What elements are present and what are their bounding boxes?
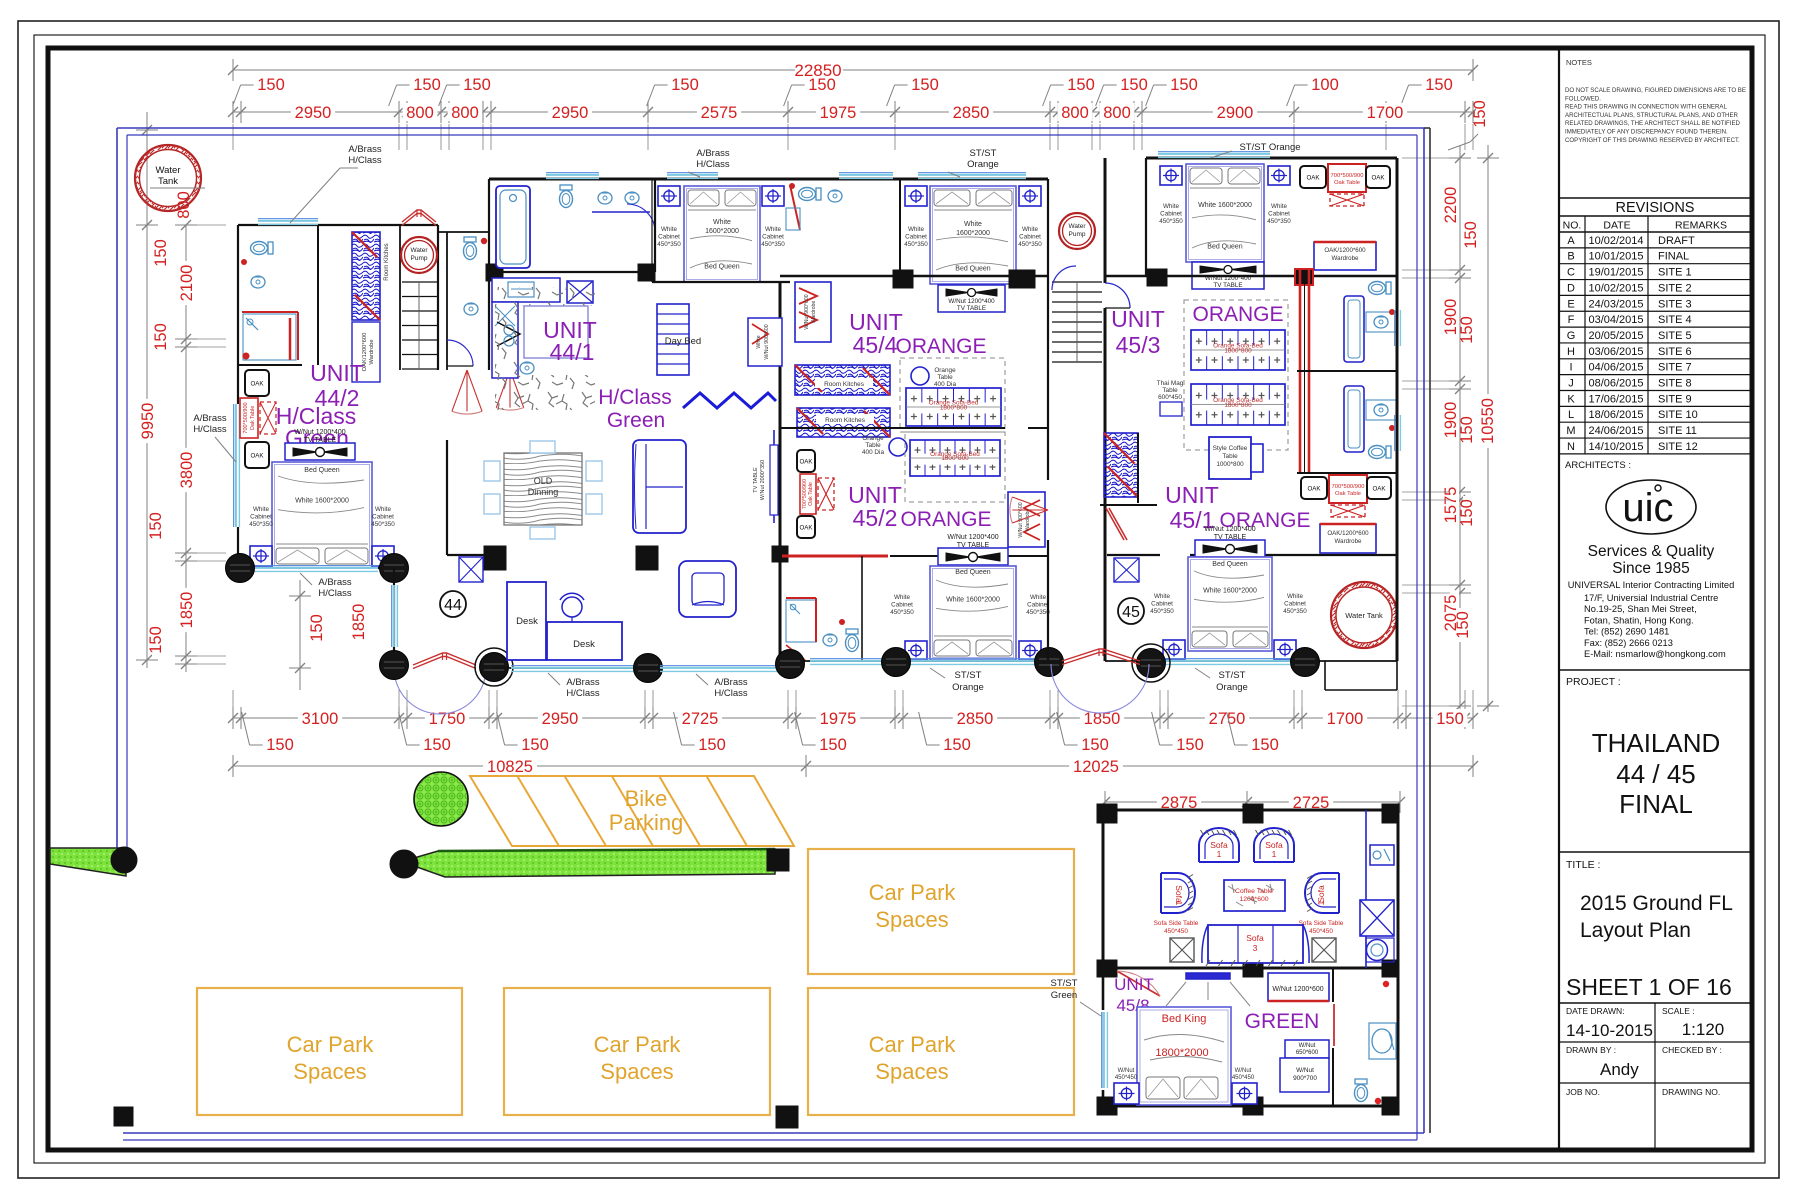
svg-text:PROJECT :: PROJECT :: [1566, 676, 1621, 688]
svg-text:Sofa: Sofa: [1316, 885, 1326, 903]
svg-text:A/Brass: A/Brass: [714, 677, 748, 688]
svg-text:150: 150: [1251, 736, 1279, 754]
svg-text:14/10/2015: 14/10/2015: [1588, 441, 1643, 453]
svg-text:Cabinet: Cabinet: [762, 234, 784, 241]
svg-text:SITE 7: SITE 7: [1658, 362, 1692, 374]
svg-text:Oak Table: Oak Table: [1335, 491, 1361, 497]
svg-text:SITE 11: SITE 11: [1658, 425, 1697, 437]
svg-text:Layout Plan: Layout Plan: [1580, 919, 1691, 942]
svg-text:White: White: [1154, 593, 1171, 600]
svg-text:TV TABLE: TV TABLE: [957, 305, 986, 312]
svg-text:A/Brass: A/Brass: [193, 413, 227, 424]
svg-text:Services & Quality: Services & Quality: [1588, 543, 1715, 560]
svg-text:150: 150: [1471, 100, 1489, 128]
svg-text:Orange: Orange: [952, 682, 984, 693]
svg-text:2725: 2725: [682, 710, 719, 728]
svg-text:650*600: 650*600: [1296, 1050, 1319, 1056]
svg-text:150: 150: [1458, 316, 1476, 344]
svg-text:Coffee Table: Coffee Table: [1235, 888, 1273, 895]
svg-text:03/06/2015: 03/06/2015: [1588, 346, 1643, 358]
svg-text:OAK: OAK: [1371, 175, 1385, 182]
svg-text:450*450: 450*450: [1164, 928, 1188, 935]
svg-text:DRAWN BY :: DRAWN BY :: [1566, 1045, 1616, 1055]
svg-text:I: I: [1569, 362, 1572, 374]
svg-text:B: B: [1567, 251, 1574, 263]
svg-text:9950: 9950: [139, 403, 157, 440]
svg-text:700*500/900: 700*500/900: [1332, 484, 1365, 490]
svg-text:COPYRIGHT OF THIS DRAWING RESE: COPYRIGHT OF THIS DRAWING RESERVED BY AR…: [1565, 137, 1740, 144]
svg-text:H/Class: H/Class: [598, 386, 672, 409]
svg-text:REVISIONS: REVISIONS: [1616, 200, 1695, 216]
svg-text:1600*2000: 1600*2000: [705, 228, 739, 235]
svg-text:Bike: Bike: [625, 786, 668, 811]
svg-text:White 1600*2000: White 1600*2000: [946, 597, 1000, 604]
svg-text:450*350: 450*350: [1026, 609, 1050, 616]
svg-text:W/Nut 1200*400: W/Nut 1200*400: [1204, 526, 1255, 533]
svg-text:Since 1985: Since 1985: [1612, 560, 1690, 577]
svg-text:OAK: OAK: [1372, 486, 1386, 493]
svg-text:FOLLOWED.: FOLLOWED.: [1565, 95, 1601, 102]
svg-text:Wardrobe: Wardrobe: [369, 339, 375, 364]
svg-text:L: L: [1568, 409, 1574, 421]
svg-text:Parking: Parking: [609, 810, 684, 835]
svg-text:150: 150: [1425, 76, 1453, 94]
svg-text:H/Class: H/Class: [348, 155, 382, 166]
svg-text:Desk: Desk: [573, 639, 595, 650]
svg-text:C: C: [1567, 267, 1575, 279]
svg-text:W/Nut 1200*400: W/Nut 1200*400: [948, 298, 995, 305]
svg-text:150: 150: [1176, 736, 1204, 754]
svg-text:Water Tank: Water Tank: [1345, 611, 1383, 620]
svg-text:10825: 10825: [487, 758, 533, 776]
svg-text:Table: Table: [1162, 387, 1178, 394]
svg-text:44 / 45: 44 / 45: [1616, 759, 1696, 789]
svg-text:Cabinet: Cabinet: [372, 514, 394, 521]
svg-text:1: 1: [1174, 901, 1184, 906]
svg-text:Bed Queen: Bed Queen: [1212, 561, 1248, 568]
svg-text:3: 3: [1253, 943, 1258, 953]
svg-text:W/Nut 900*600: W/Nut 900*600: [764, 324, 770, 359]
svg-text:OAK/1200*600: OAK/1200*600: [1327, 530, 1369, 537]
svg-text:450*450: 450*450: [1115, 1075, 1138, 1081]
svg-text:800: 800: [1061, 104, 1089, 122]
svg-text:READ THIS DRAWING IN CONNECTIO: READ THIS DRAWING IN CONNECTION WITH GEN…: [1565, 104, 1727, 111]
svg-text:Bed Queen: Bed Queen: [304, 467, 340, 474]
svg-text:150: 150: [1462, 221, 1480, 249]
svg-text:TV TABLE: TV TABLE: [957, 542, 990, 549]
svg-text:1: 1: [1272, 849, 1277, 859]
svg-text:Spaces: Spaces: [600, 1059, 673, 1084]
svg-text:DRAFT: DRAFT: [1658, 235, 1695, 247]
svg-text:Water: Water: [156, 165, 181, 176]
svg-text:1700: 1700: [1367, 104, 1404, 122]
svg-text:150: 150: [521, 736, 549, 754]
svg-text:F: F: [1568, 314, 1575, 326]
svg-text:Andy: Andy: [1600, 1060, 1639, 1079]
svg-text:150: 150: [152, 239, 170, 267]
svg-text:150: 150: [257, 76, 285, 94]
svg-text:Wardrobe: Wardrobe: [811, 301, 817, 324]
svg-text:DO NOT SCALE DRAWING, FIGURED: DO NOT SCALE DRAWING, FIGURED DIMENSIONS…: [1565, 87, 1746, 94]
svg-text:ORANGE: ORANGE: [900, 508, 991, 531]
svg-text:450*350: 450*350: [761, 241, 785, 248]
svg-text:1975: 1975: [820, 710, 857, 728]
svg-text:W/Nut: W/Nut: [1118, 1068, 1135, 1074]
svg-text:SITE 12: SITE 12: [1658, 441, 1698, 453]
svg-text:600*450: 600*450: [1158, 394, 1182, 401]
svg-text:H/Class: H/Class: [566, 688, 600, 699]
svg-text:OAK: OAK: [250, 381, 264, 388]
svg-text:150: 150: [266, 736, 294, 754]
svg-text:Table: Table: [937, 374, 953, 381]
svg-text:Room Kitches: Room Kitches: [825, 417, 865, 424]
svg-text:Cabinet: Cabinet: [1160, 211, 1182, 218]
svg-text:2200: 2200: [1442, 187, 1460, 224]
svg-text:FINAL: FINAL: [1658, 251, 1689, 263]
svg-text:150: 150: [1458, 416, 1476, 444]
svg-text:20/05/2015: 20/05/2015: [1588, 330, 1643, 342]
svg-text:Day Bed: Day Bed: [665, 336, 701, 347]
svg-text:Sofa Side Table: Sofa Side Table: [1299, 920, 1344, 927]
svg-text:14-10-2015: 14-10-2015: [1566, 1021, 1653, 1040]
svg-text:10/02/2015: 10/02/2015: [1588, 282, 1643, 294]
svg-text:2100: 2100: [178, 265, 196, 302]
svg-text:900*700: 900*700: [1293, 1075, 1317, 1082]
svg-text:Green: Green: [1051, 990, 1077, 1001]
svg-text:A/Brass: A/Brass: [696, 148, 730, 159]
svg-text:150: 150: [413, 76, 441, 94]
svg-text:2950: 2950: [295, 104, 332, 122]
svg-text:24/06/2015: 24/06/2015: [1588, 425, 1643, 437]
svg-text:Orange: Orange: [1216, 682, 1248, 693]
svg-text:White: White: [1163, 203, 1180, 210]
svg-text:2850: 2850: [957, 710, 994, 728]
svg-text:17/06/2015: 17/06/2015: [1588, 393, 1643, 405]
svg-text:Pump: Pump: [1069, 231, 1086, 238]
svg-text:Water: Water: [410, 247, 428, 254]
svg-text:W/Nut 2000*350: W/Nut 2000*350: [760, 460, 766, 500]
svg-text:100: 100: [1311, 76, 1339, 94]
svg-text:2950: 2950: [542, 710, 579, 728]
svg-text:Wardrobe: Wardrobe: [1335, 538, 1362, 545]
svg-text:White: White: [253, 506, 270, 513]
svg-text:Desk: Desk: [516, 616, 538, 627]
svg-text:E-Mail: nsmarlow@hongkong.com: E-Mail: nsmarlow@hongkong.com: [1584, 649, 1726, 659]
svg-text:450*350: 450*350: [1283, 608, 1307, 615]
svg-text:Thai Mag: Thai Mag: [1157, 380, 1184, 387]
svg-text:DATE DRAWN:: DATE DRAWN:: [1566, 1006, 1625, 1016]
svg-text:White 1600*2000: White 1600*2000: [1203, 588, 1257, 595]
svg-text:450*450: 450*450: [1232, 1075, 1255, 1081]
svg-text:450*350: 450*350: [890, 609, 914, 616]
svg-text:2015 Ground FL: 2015 Ground FL: [1580, 892, 1733, 915]
svg-text:Bed King: Bed King: [1162, 1013, 1207, 1025]
svg-text:2950: 2950: [552, 104, 589, 122]
svg-text:SITE 4: SITE 4: [1658, 314, 1692, 326]
svg-text:ST/ST: ST/ST: [970, 148, 997, 159]
svg-text:ST/ST: ST/ST: [1051, 978, 1078, 989]
svg-text:W/Nut 1200*400: W/Nut 1200*400: [294, 429, 345, 436]
svg-text:White: White: [713, 219, 731, 226]
svg-text:150: 150: [943, 736, 971, 754]
svg-text:White: White: [1022, 226, 1039, 233]
svg-text:Style Coffee: Style Coffee: [1213, 445, 1248, 452]
svg-text:H/Class: H/Class: [696, 159, 730, 170]
svg-text:SITE 10: SITE 10: [1658, 409, 1698, 421]
svg-text:Spaces: Spaces: [875, 1059, 948, 1084]
svg-text:NOTES: NOTES: [1566, 58, 1592, 67]
svg-text:24/03/2015: 24/03/2015: [1588, 298, 1643, 310]
svg-text:JOB NO.: JOB NO.: [1566, 1087, 1600, 1097]
svg-text:Sofa: Sofa: [1246, 933, 1264, 943]
svg-text:Tel: (852) 2690 1481: Tel: (852) 2690 1481: [1584, 627, 1669, 637]
svg-text:700*500/900: 700*500/900: [1331, 173, 1364, 179]
svg-text:Dinning: Dinning: [528, 487, 559, 497]
svg-text:Table: Table: [865, 442, 881, 449]
svg-text:04/06/2015: 04/06/2015: [1588, 362, 1643, 374]
svg-text:W/Nut: W/Nut: [1235, 1068, 1252, 1074]
svg-text:10/02/2014: 10/02/2014: [1588, 235, 1643, 247]
svg-text:150: 150: [147, 512, 165, 540]
svg-text:H/Class: H/Class: [714, 688, 748, 699]
svg-text:Orange: Orange: [934, 367, 956, 374]
svg-text:17/F, Universial Industrial Ce: 17/F, Universial Industrial Centre: [1584, 593, 1718, 603]
svg-text:UNIT: UNIT: [310, 360, 364, 386]
svg-text:White: White: [375, 506, 392, 513]
svg-text:UNIVERSAL Interior Contracting: UNIVERSAL Interior Contracting Limited: [1568, 580, 1735, 590]
svg-text:J: J: [1568, 378, 1574, 390]
svg-text:Bed Queen: Bed Queen: [955, 265, 991, 272]
svg-text:Bed Queen: Bed Queen: [1207, 243, 1243, 250]
svg-text:44: 44: [444, 597, 462, 614]
svg-text:1: 1: [1316, 900, 1326, 905]
svg-text:150: 150: [152, 323, 170, 351]
svg-text:45: 45: [1122, 604, 1140, 621]
svg-text:150: 150: [671, 76, 699, 94]
svg-text:Tank: Tank: [158, 176, 178, 187]
svg-text:1975: 1975: [820, 104, 857, 122]
svg-text:CHECKED BY :: CHECKED BY :: [1662, 1045, 1722, 1055]
svg-text:Cabinet: Cabinet: [905, 234, 927, 241]
svg-text:White: White: [1271, 203, 1288, 210]
svg-text:K: K: [1567, 393, 1575, 405]
svg-text:10550: 10550: [1479, 398, 1497, 444]
svg-text:uic: uic: [1622, 486, 1673, 530]
svg-text:1800*800: 1800*800: [941, 455, 969, 462]
svg-text:1850: 1850: [178, 592, 196, 629]
svg-text:M: M: [1566, 425, 1575, 437]
svg-text:1600*2000: 1600*2000: [956, 230, 990, 237]
svg-text:18/06/2015: 18/06/2015: [1588, 409, 1643, 421]
svg-text:150: 150: [698, 736, 726, 754]
svg-text:GREEN: GREEN: [1245, 1010, 1320, 1033]
svg-text:UNIT: UNIT: [1114, 975, 1154, 994]
svg-text:W/Nut: W/Nut: [1299, 1043, 1316, 1049]
svg-text:SCALE :: SCALE :: [1662, 1006, 1695, 1016]
svg-text:W/Nut 900*600: W/Nut 900*600: [804, 294, 810, 329]
svg-text:400 Dia: 400 Dia: [862, 449, 884, 456]
svg-text:150: 150: [911, 76, 939, 94]
svg-text:450*350: 450*350: [249, 521, 273, 528]
svg-text:150: 150: [1081, 736, 1109, 754]
svg-text:150: 150: [808, 76, 836, 94]
svg-text:TITLE :: TITLE :: [1566, 859, 1600, 871]
svg-text:450*450: 450*450: [1309, 928, 1333, 935]
svg-text:12025: 12025: [1073, 758, 1119, 776]
svg-text:DRAWING NO.: DRAWING NO.: [1662, 1087, 1720, 1097]
svg-text:ST/ST: ST/ST: [955, 670, 982, 681]
svg-text:Spaces: Spaces: [875, 907, 948, 932]
svg-text:SITE 9: SITE 9: [1658, 393, 1692, 405]
svg-text:Car Park: Car Park: [869, 1032, 957, 1057]
svg-text:Oak Table: Oak Table: [808, 482, 814, 506]
svg-text:Pump: Pump: [411, 255, 428, 262]
svg-text:H/Class: H/Class: [193, 424, 227, 435]
svg-text:150: 150: [423, 736, 451, 754]
svg-text:D: D: [1567, 282, 1575, 294]
svg-text:OAK: OAK: [799, 525, 813, 532]
svg-text:W/Nut: W/Nut: [1296, 1067, 1314, 1074]
svg-text:TV TABLE: TV TABLE: [1213, 282, 1242, 289]
svg-text:White: White: [1030, 594, 1047, 601]
svg-text:1800*800: 1800*800: [1224, 347, 1252, 354]
svg-text:White 1600*2000: White 1600*2000: [1198, 202, 1252, 209]
svg-text:3800: 3800: [178, 452, 196, 489]
svg-text:Cabinet: Cabinet: [1019, 234, 1041, 241]
svg-text:TV TABLE: TV TABLE: [1214, 534, 1247, 541]
svg-text:3100: 3100: [302, 710, 339, 728]
svg-text:White: White: [765, 226, 782, 233]
svg-text:OLD: OLD: [534, 476, 553, 486]
svg-text:450*350: 450*350: [904, 241, 928, 248]
svg-text:A/Brass: A/Brass: [566, 677, 600, 688]
svg-text:Fotan, Shatin, Hong Kong.: Fotan, Shatin, Hong Kong.: [1584, 615, 1694, 625]
svg-text:150: 150: [819, 736, 847, 754]
svg-text:1800*800: 1800*800: [940, 404, 968, 411]
svg-text:1: 1: [1217, 849, 1222, 859]
svg-text:2900: 2900: [1217, 104, 1254, 122]
svg-text:REMARKS: REMARKS: [1675, 220, 1727, 232]
svg-text:White: White: [1287, 593, 1304, 600]
svg-text:150: 150: [1454, 611, 1472, 639]
svg-text:Spaces: Spaces: [293, 1059, 366, 1084]
svg-text:Cabinet: Cabinet: [1284, 601, 1306, 608]
svg-text:TV TABLE: TV TABLE: [304, 437, 337, 444]
svg-text:Cabinet: Cabinet: [1151, 601, 1173, 608]
svg-text:FINAL: FINAL: [1619, 789, 1693, 819]
svg-text:Room Kitches: Room Kitches: [824, 381, 864, 388]
svg-text:Bed Queen: Bed Queen: [704, 264, 740, 271]
svg-text:1200*600: 1200*600: [1239, 896, 1268, 903]
svg-text:03/04/2015: 03/04/2015: [1588, 314, 1643, 326]
svg-text:1850: 1850: [350, 604, 368, 641]
svg-text:450*350: 450*350: [657, 241, 681, 248]
svg-text:White: White: [964, 221, 982, 228]
svg-text:ST/ST Orange: ST/ST Orange: [1239, 142, 1300, 153]
svg-text:ST/ST: ST/ST: [1219, 670, 1246, 681]
svg-text:1800*2000: 1800*2000: [1155, 1047, 1208, 1059]
svg-text:450*350: 450*350: [1159, 218, 1183, 225]
svg-text:450*350: 450*350: [1267, 218, 1291, 225]
svg-text:10/01/2015: 10/01/2015: [1588, 251, 1643, 263]
svg-text:150: 150: [1120, 76, 1148, 94]
svg-text:White: White: [894, 594, 911, 601]
svg-text:E: E: [1567, 298, 1574, 310]
svg-text:A/Brass: A/Brass: [348, 144, 382, 155]
svg-text:RELATED DRAWINGS, THE ARCHITEC: RELATED DRAWINGS, THE ARCHITECT SHALL BE…: [1565, 120, 1741, 127]
svg-text:OAK: OAK: [799, 459, 813, 466]
svg-text:OAK/1200*600: OAK/1200*600: [1324, 247, 1366, 254]
svg-text:45/3: 45/3: [1116, 332, 1161, 358]
svg-text:White: White: [908, 226, 925, 233]
svg-text:Orange: Orange: [862, 435, 884, 442]
svg-text:OAK: OAK: [250, 453, 264, 460]
svg-text:Water: Water: [1068, 223, 1086, 230]
svg-text:150: 150: [1436, 710, 1464, 728]
svg-text:2850: 2850: [953, 104, 990, 122]
svg-text:400 Dia: 400 Dia: [934, 381, 956, 388]
svg-text:ORANGE: ORANGE: [895, 335, 986, 358]
svg-text:IMMEDIATELY OF ANY DISCREPANCY: IMMEDIATELY OF ANY DISCREPANCY FOUND THE…: [1565, 129, 1728, 136]
svg-text:UNIT: UNIT: [1111, 306, 1165, 332]
svg-text:Orange: Orange: [967, 159, 999, 170]
svg-text:Table: Table: [1222, 453, 1238, 460]
svg-text:H: H: [1567, 346, 1575, 358]
svg-text:Cabinet: Cabinet: [658, 234, 680, 241]
svg-text:A/Brass: A/Brass: [318, 577, 352, 588]
svg-text:White 1600*2000: White 1600*2000: [295, 497, 349, 504]
svg-text:ARCHITECTUAL PLANS, STRUCTURAL: ARCHITECTUAL PLANS, STRUCTURAL PLANS, AN…: [1565, 112, 1739, 119]
svg-text:45/4: 45/4: [853, 332, 898, 358]
svg-text:OAK: OAK: [1306, 175, 1320, 182]
svg-text:NO.: NO.: [1563, 220, 1582, 232]
svg-text:150: 150: [147, 626, 165, 654]
svg-text:Sofa Side Table: Sofa Side Table: [1154, 920, 1199, 927]
svg-text:ARCHITECTS :: ARCHITECTS :: [1565, 460, 1631, 471]
svg-text:H/Class: H/Class: [318, 588, 352, 599]
svg-text:44/1: 44/1: [550, 339, 595, 365]
svg-text:Cabinet: Cabinet: [1268, 211, 1290, 218]
svg-text:UNIT: UNIT: [1165, 482, 1219, 508]
svg-text:150: 150: [463, 76, 491, 94]
svg-text:150: 150: [1458, 499, 1476, 527]
svg-text:800: 800: [406, 104, 434, 122]
svg-text:Wardrobe: Wardrobe: [1332, 255, 1359, 262]
svg-text:Oak Table: Oak Table: [1334, 180, 1360, 186]
svg-text:450*350: 450*350: [1018, 241, 1042, 248]
svg-text:Cabinet: Cabinet: [1027, 602, 1049, 609]
svg-text:Cabinet: Cabinet: [250, 514, 272, 521]
svg-text:Car Park: Car Park: [287, 1032, 375, 1057]
svg-text:Bed Queen: Bed Queen: [955, 569, 991, 576]
svg-text:150: 150: [1067, 76, 1095, 94]
svg-text:SITE 2: SITE 2: [1658, 282, 1692, 294]
svg-text:150: 150: [308, 614, 326, 642]
svg-text:SITE 1: SITE 1: [1658, 267, 1692, 279]
svg-text:W/Nut 1200*600: W/Nut 1200*600: [1272, 986, 1323, 993]
svg-text:TV TABLE: TV TABLE: [753, 467, 759, 493]
svg-text:N: N: [1567, 441, 1575, 453]
svg-text:SITE 8: SITE 8: [1658, 378, 1692, 390]
svg-text:1800*800: 1800*800: [1224, 402, 1252, 409]
svg-text:A: A: [1567, 235, 1575, 247]
svg-text:Fax: (852) 2666 0213: Fax: (852) 2666 0213: [1584, 638, 1673, 648]
svg-text:Car Park: Car Park: [594, 1032, 682, 1057]
svg-text:08/06/2015: 08/06/2015: [1588, 378, 1643, 390]
svg-text:19/01/2015: 19/01/2015: [1588, 267, 1643, 279]
svg-text:700*500/900: 700*500/900: [243, 402, 249, 433]
svg-text:2575: 2575: [701, 104, 738, 122]
